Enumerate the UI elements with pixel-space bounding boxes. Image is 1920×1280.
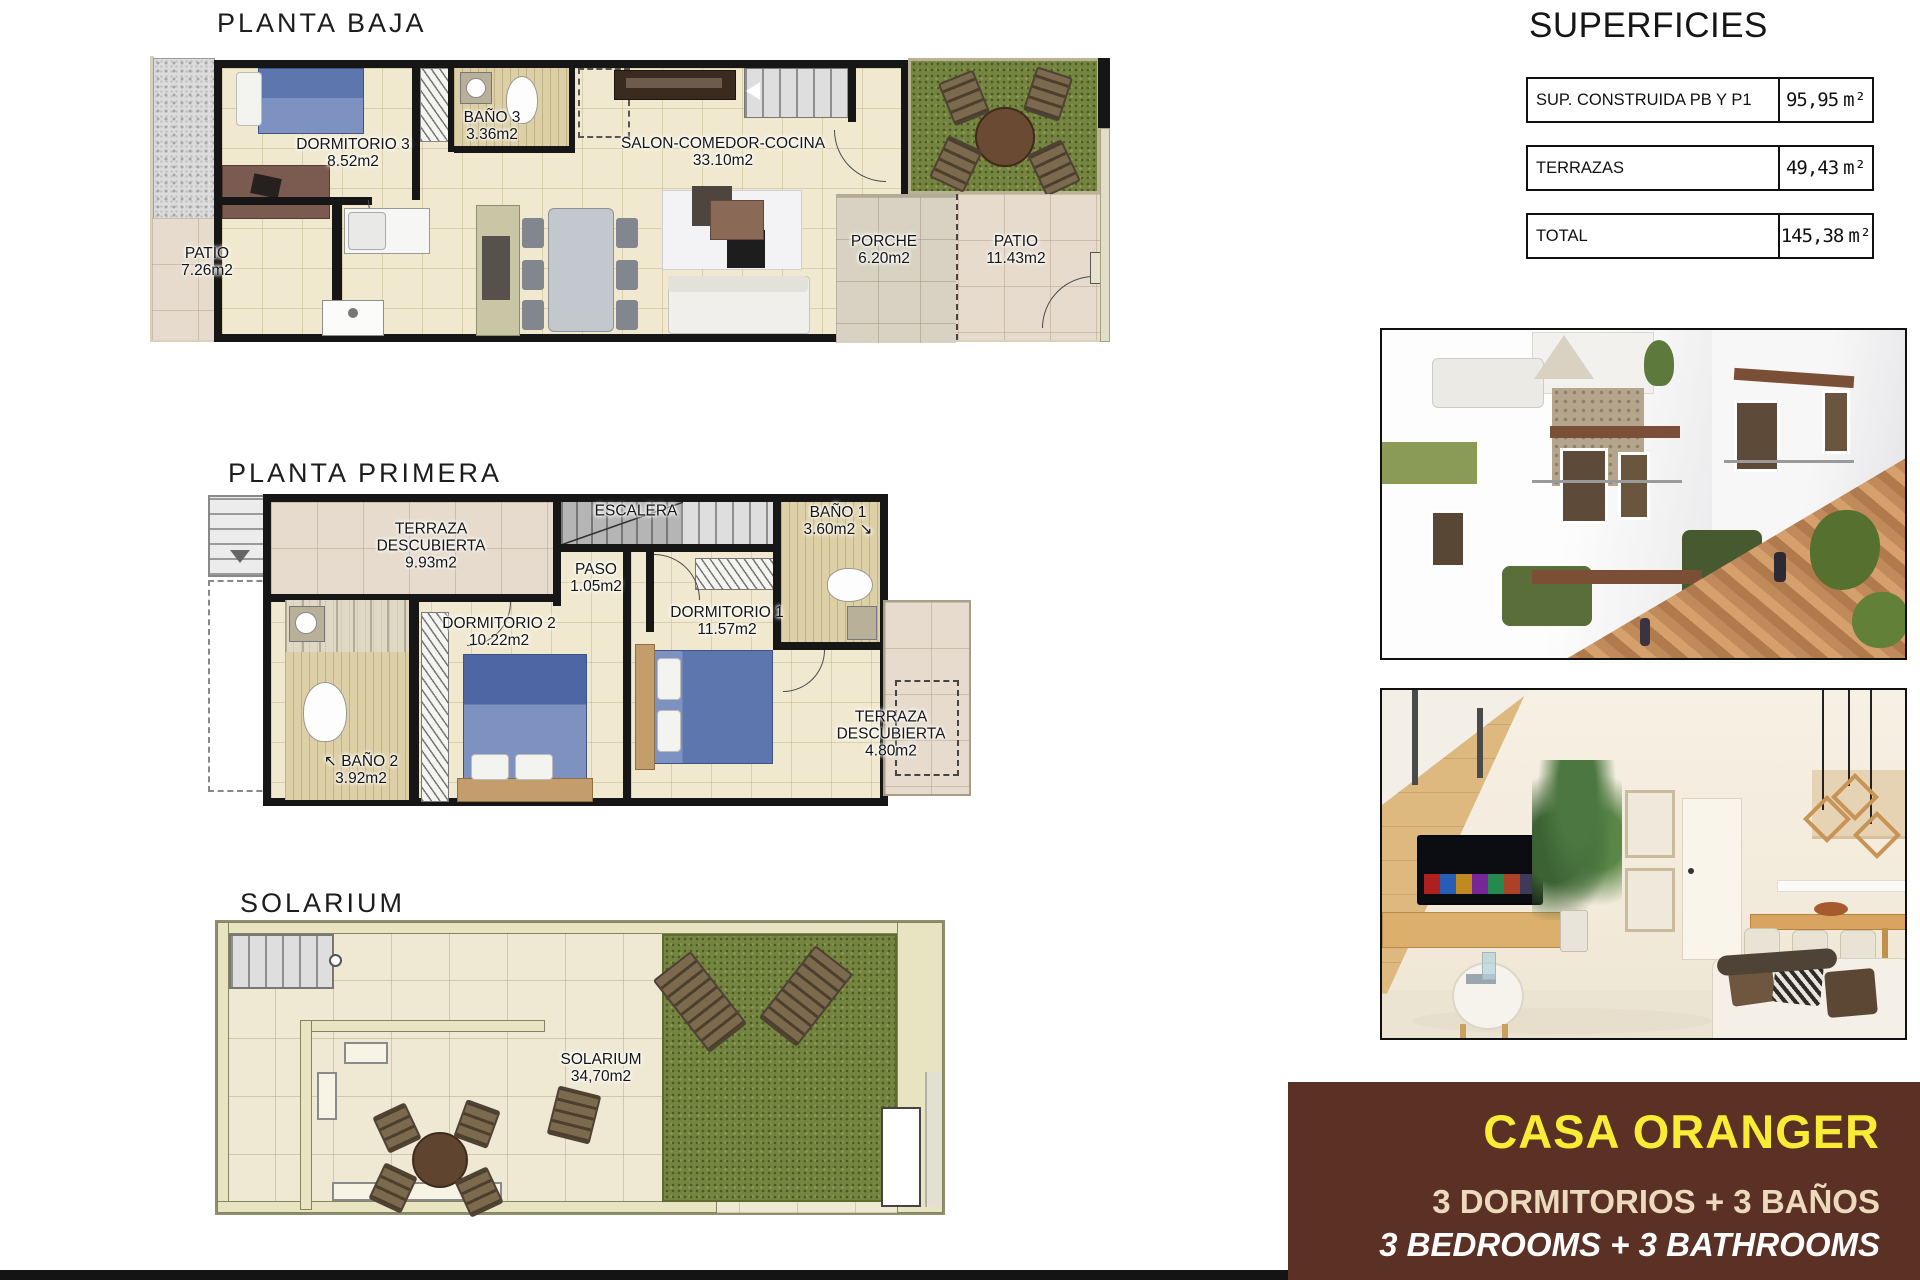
pillow <box>236 72 262 126</box>
sofa-back <box>668 276 808 292</box>
brochure-page: PLANTA BAJA PLANTA PRIMERA SOLARIUM <box>0 0 1920 1280</box>
superficies-row-label: SUP. CONSTRUIDA PB Y P1 <box>1528 79 1780 121</box>
exterior-render-image <box>1380 328 1907 660</box>
room-label-terraza1: TERRAZADESCUBIERTA9.93m2 <box>377 520 486 571</box>
door-arc-bano1 <box>783 650 825 692</box>
chair <box>522 218 544 248</box>
stone-strip <box>153 58 215 220</box>
garden-chair <box>1027 139 1081 197</box>
plant-pot <box>1560 910 1588 952</box>
wall <box>222 197 372 205</box>
floorplan-ground <box>150 52 1130 344</box>
tv-screen <box>1417 835 1543 905</box>
balcony-rail <box>1724 460 1854 463</box>
wall <box>781 642 881 650</box>
bed-dorm3 <box>258 68 364 134</box>
faucet <box>348 308 358 318</box>
solarium-grass <box>662 934 897 1202</box>
pillow <box>515 754 553 780</box>
carafe <box>1482 952 1496 980</box>
room-label-patio-izq: PATIO7.26m2 <box>181 245 233 279</box>
window <box>1560 448 1608 524</box>
page-bottom-edge <box>0 1270 1292 1280</box>
stair-railing <box>1477 708 1483 778</box>
porch-floor <box>836 194 956 343</box>
roof-lawn <box>1382 442 1477 484</box>
property-name: CASA ORANGER <box>1288 1104 1880 1159</box>
sink-icon <box>466 78 486 98</box>
washer-icon <box>348 212 386 250</box>
room-label-bano1: BAÑO 13.60m2 ↘ <box>804 504 873 538</box>
room-label-patio-der: PATIO11.43m2 <box>986 233 1045 267</box>
chair <box>616 300 638 330</box>
stair-post <box>329 954 342 967</box>
wall <box>848 68 856 122</box>
brand-panel: CASA ORANGER 3 DORMITORIOS + 3 BAÑOS 3 B… <box>1288 1082 1920 1280</box>
headboard <box>635 644 655 770</box>
room-label-bano2: ↖ BAÑO 23.92m2 <box>324 753 398 787</box>
plant <box>1532 760 1622 920</box>
chair <box>616 260 638 290</box>
superficies-row-label: TERRAZAS <box>1528 147 1780 189</box>
door-arc-paso <box>654 554 700 600</box>
wall <box>409 600 419 806</box>
superficies-row-label: TOTAL <box>1528 215 1780 257</box>
window <box>1618 452 1650 520</box>
chair <box>522 260 544 290</box>
superficies-row-value: 145,38m² <box>1780 215 1872 257</box>
sol-opening <box>881 1107 921 1207</box>
stairs-interior-2 <box>681 502 781 544</box>
room-label-dormitorio-2: DORMITORIO 210.22m2 <box>442 615 555 649</box>
patio-door-arc <box>1042 276 1094 328</box>
tree <box>1852 592 1907 648</box>
pendant-cord <box>1848 690 1850 786</box>
sol-wall <box>217 922 943 934</box>
window <box>1822 390 1850 454</box>
hall-door <box>1682 798 1742 960</box>
pillow <box>657 658 681 700</box>
room-label-escalera: ESCALERA <box>595 502 678 519</box>
wall <box>646 552 654 632</box>
chair <box>522 300 544 330</box>
toilet-icon <box>827 568 873 602</box>
sink-counter <box>847 606 877 640</box>
bed-base <box>457 778 593 802</box>
wall-art <box>1625 868 1675 932</box>
chair <box>547 1085 602 1144</box>
superficies-title: SUPERFICIES <box>1529 6 1768 46</box>
tv-shelf <box>626 78 722 88</box>
kitchen-sink <box>322 300 384 336</box>
entry-door-arc <box>834 130 886 182</box>
window <box>1430 510 1466 568</box>
balcony-rail <box>1532 480 1682 483</box>
room-label-paso: PASO1.05m2 <box>570 561 622 595</box>
superficies-row: TERRAZAS 49,43m² <box>1526 145 1874 191</box>
bench <box>344 1042 388 1064</box>
features-english: 3 BEDROOMS + 3 BATHROOMS <box>1288 1226 1880 1264</box>
wall <box>1098 58 1110 128</box>
room-label-solarium: SOLARIUM34,70m2 <box>561 1051 642 1085</box>
title-planta-primera: PLANTA PRIMERA <box>228 458 502 489</box>
ground-main-unit <box>214 60 909 342</box>
stairs-solarium <box>229 934 334 989</box>
table-leg <box>1460 1024 1466 1040</box>
superficies-row: SUP. CONSTRUIDA PB Y P1 95,95m² <box>1526 77 1874 123</box>
person <box>1640 618 1650 646</box>
sun-lounger <box>759 945 853 1047</box>
wall-art <box>1625 790 1675 858</box>
room-label-porche: PORCHE6.20m2 <box>851 233 917 267</box>
pergola-beam <box>1550 426 1680 438</box>
room-label-terraza2: TERRAZADESCUBIERTA4.80m2 <box>837 708 946 759</box>
garden-grass <box>908 58 1100 194</box>
outer-wall-strip <box>1100 128 1110 342</box>
pendant-cord <box>1822 690 1824 810</box>
oven-stack <box>482 236 510 300</box>
dining-table <box>548 208 614 332</box>
fruit-bowl <box>1814 902 1848 916</box>
table-leg <box>1502 1024 1508 1040</box>
roof-plant <box>1644 340 1674 386</box>
title-planta-baja: PLANTA BAJA <box>217 8 427 39</box>
toilet-icon <box>303 682 347 742</box>
superficies-row-value: 95,95m² <box>1780 79 1872 121</box>
coffee-table <box>710 200 764 240</box>
wall <box>553 502 561 606</box>
sol-inner-wall <box>300 1020 312 1210</box>
roof-sofa <box>1432 358 1544 408</box>
terraza2-floor <box>883 600 971 796</box>
interior-render-image <box>1380 688 1907 1040</box>
room-label-dormitorio-1: DORMITORIO 111.57m2 <box>670 604 783 638</box>
title-solarium: SOLARIUM <box>240 888 405 919</box>
person <box>1774 552 1786 582</box>
chair <box>616 218 638 248</box>
tv-app-row <box>1424 874 1532 894</box>
garden-chair <box>1023 66 1073 121</box>
sun-lounger <box>653 951 747 1053</box>
bench <box>317 1072 337 1120</box>
room-label-dormitorio-3: DORMITORIO 38.52m2 <box>296 136 409 170</box>
garden-table <box>975 107 1035 167</box>
stairs-arrow <box>746 82 760 100</box>
wall <box>412 68 420 200</box>
door-handle <box>1688 868 1694 874</box>
sink-icon <box>295 612 317 634</box>
wall <box>454 146 569 153</box>
sol-hatch-strip <box>925 1072 941 1207</box>
room-label-bano-3: BAÑO 33.36m2 <box>464 109 521 143</box>
superficies-row: TOTAL 145,38m² <box>1526 213 1874 259</box>
stairs-arrow <box>230 550 250 563</box>
stair-railing <box>1412 690 1418 785</box>
kitchen-counter <box>1777 880 1907 892</box>
sofa-pillow <box>1824 968 1878 1018</box>
pillow <box>657 710 681 752</box>
wall <box>623 552 631 806</box>
room-label-salon: SALON-COMEDOR-COCINA33.10m2 <box>621 135 825 169</box>
wall <box>569 68 575 153</box>
closet-hatch <box>420 68 450 142</box>
fence <box>1532 570 1702 584</box>
sol-wall <box>217 922 229 1213</box>
features-spanish: 3 DORMITORIOS + 3 BAÑOS <box>1288 1183 1880 1221</box>
superficies-row-value: 49,43m² <box>1780 147 1872 189</box>
pillow <box>471 754 509 780</box>
sol-inner-wall <box>300 1020 545 1032</box>
wall <box>561 544 781 552</box>
